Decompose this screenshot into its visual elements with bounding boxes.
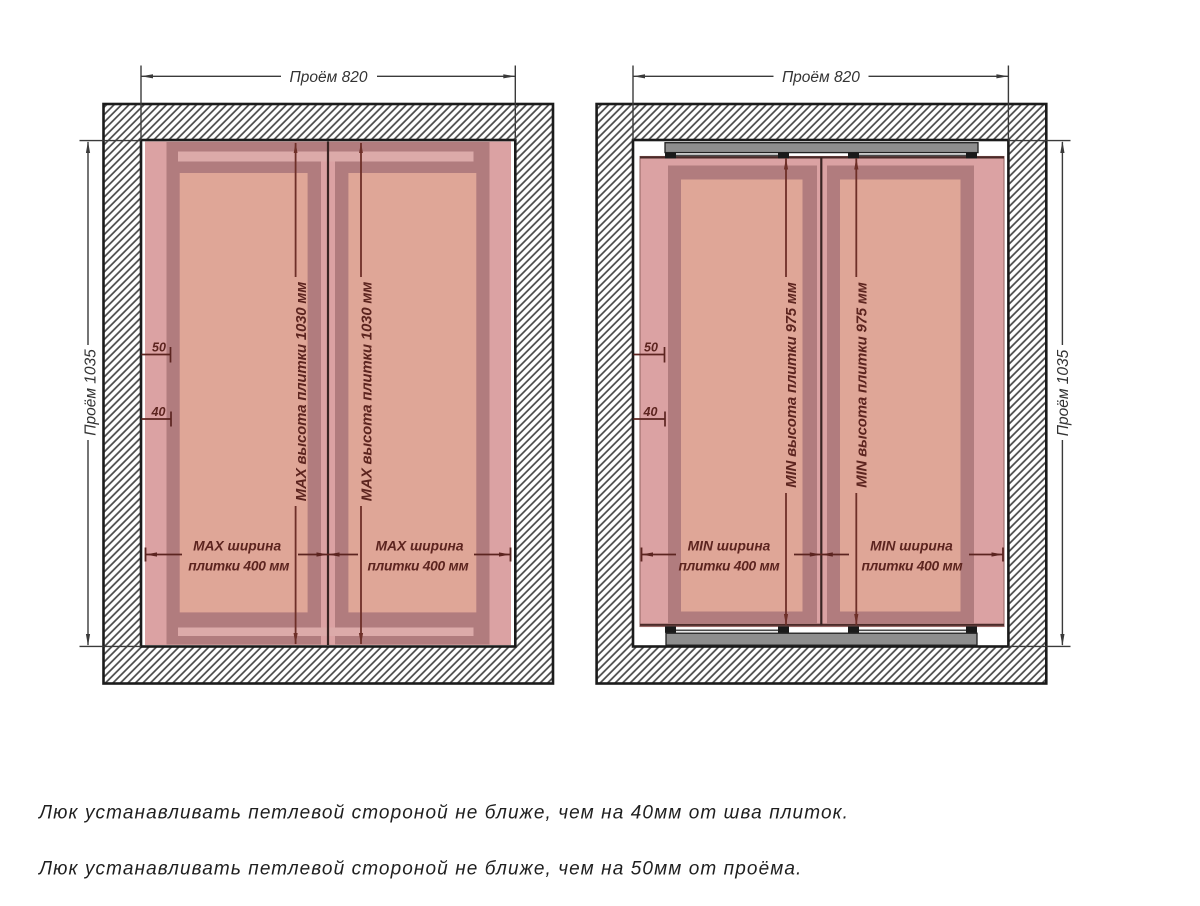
svg-text:MAX высота плитки 1030 мм: MAX высота плитки 1030 мм <box>293 282 310 501</box>
svg-text:Люк устанавливать петлевой сто: Люк устанавливать петлевой стороной не б… <box>37 803 849 824</box>
svg-text:MIN высота плитки 975 мм: MIN высота плитки 975 мм <box>783 282 800 488</box>
svg-text:40: 40 <box>151 405 166 419</box>
svg-text:50: 50 <box>152 341 166 355</box>
svg-text:Люк устанавливать петлевой сто: Люк устанавливать петлевой стороной не б… <box>37 859 802 880</box>
svg-text:MAX ширина: MAX ширина <box>193 539 281 554</box>
svg-text:Проём 820: Проём 820 <box>290 69 368 86</box>
svg-text:Проём 820: Проём 820 <box>782 69 860 86</box>
svg-text:MIN высота плитки 975 мм: MIN высота плитки 975 мм <box>854 282 871 488</box>
svg-text:MAX ширина: MAX ширина <box>375 539 463 554</box>
svg-text:50: 50 <box>644 341 658 355</box>
svg-text:плитки 400 мм: плитки 400 мм <box>679 559 780 574</box>
svg-text:плитки 400 мм: плитки 400 мм <box>368 559 469 574</box>
svg-text:MAX высота плитки 1030 мм: MAX высота плитки 1030 мм <box>358 282 375 501</box>
svg-text:плитки 400 мм: плитки 400 мм <box>862 559 963 574</box>
svg-text:плитки 400 мм: плитки 400 мм <box>188 559 289 574</box>
svg-text:MIN ширина: MIN ширина <box>870 539 953 554</box>
svg-text:40: 40 <box>643 405 658 419</box>
svg-text:Проём 1035: Проём 1035 <box>82 349 99 436</box>
svg-text:Проём 1035: Проём 1035 <box>1055 349 1072 436</box>
svg-text:MIN ширина: MIN ширина <box>688 539 771 554</box>
